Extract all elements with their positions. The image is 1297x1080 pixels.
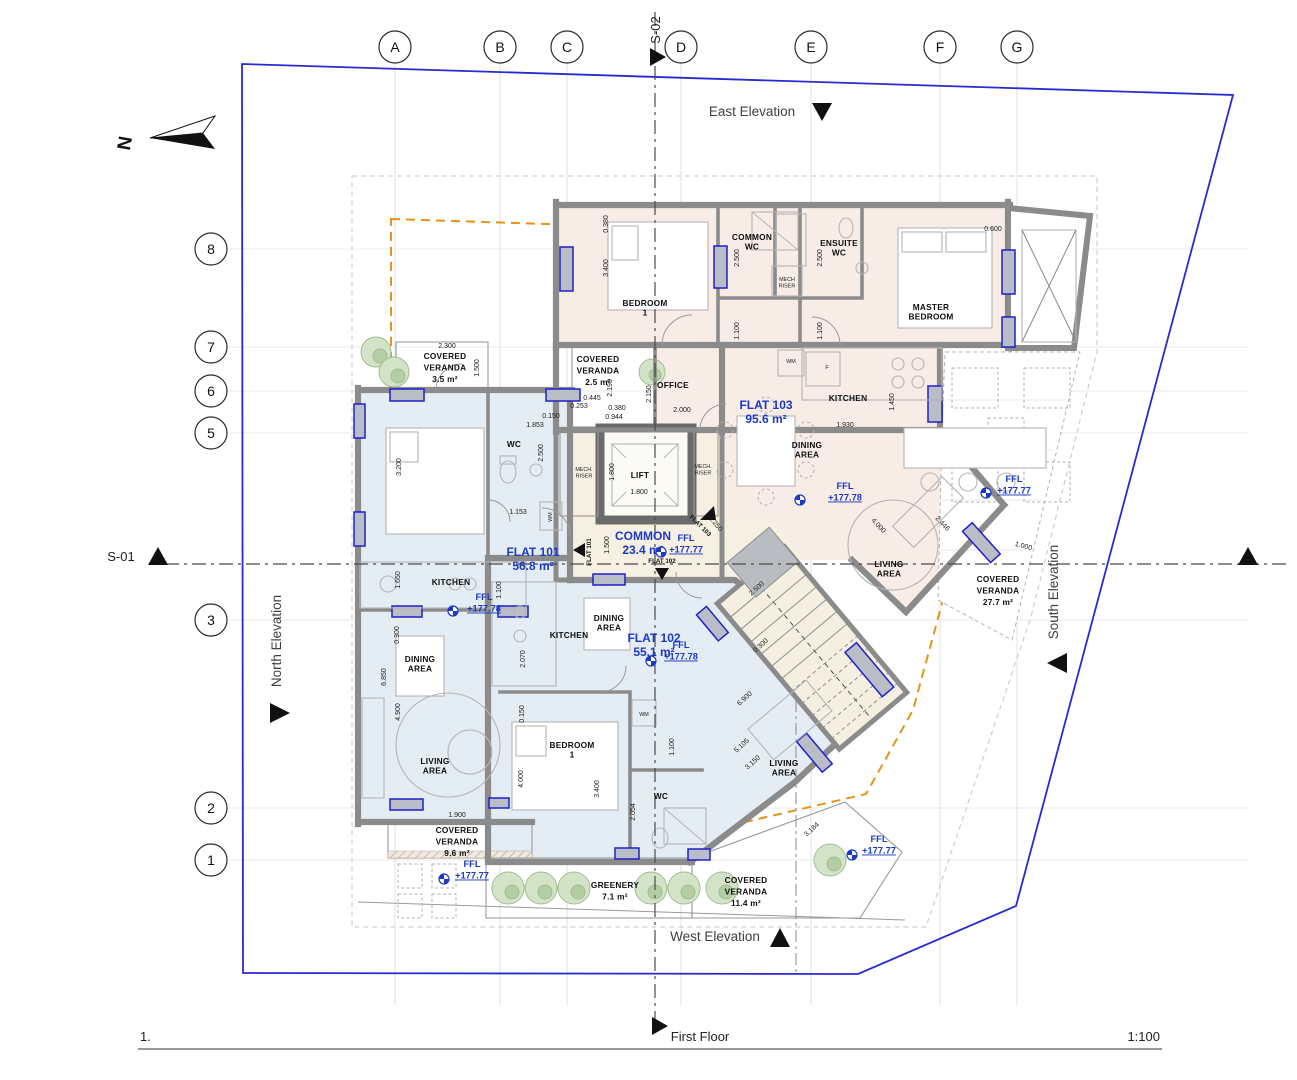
dimension-label: 1.930	[836, 422, 854, 429]
room-label: MASTERBEDROOM	[908, 302, 953, 322]
dimension-label: 1.900	[448, 812, 466, 819]
dimension-label: 2.190	[607, 379, 614, 397]
veranda-label: COVEREDVERANDA11.4 m²	[725, 875, 768, 908]
dimension-label: 2.500	[734, 249, 741, 267]
svg-text:7: 7	[207, 339, 215, 355]
title-block: 1. First Floor 1:100	[138, 1029, 1162, 1049]
dimension-label: 0.445	[583, 395, 601, 402]
dimension-label: 1.153	[509, 509, 527, 516]
svg-text:FFL: FFL	[836, 481, 853, 491]
veranda-label: COVEREDVERANDA3.5 m²	[424, 351, 467, 384]
flat-label: FLAT 10156.8 m²	[506, 545, 559, 573]
room-label: LIFT	[631, 470, 650, 480]
north-letter: N	[114, 135, 137, 152]
grid-bubble-2: 2	[195, 792, 227, 824]
north-arrow-icon: N	[114, 116, 215, 152]
flat-tag: FLAT 102	[648, 558, 676, 565]
dimension-label: 1.800	[630, 489, 648, 496]
dimension-label: 0.380	[603, 215, 610, 233]
section-label-s02: S-02	[648, 16, 663, 43]
room-label: KITCHEN	[432, 577, 471, 587]
svg-text:8: 8	[207, 241, 215, 257]
room-label: LIVINGAREA	[874, 559, 903, 579]
veranda-label: GREENERY7.1 m²	[591, 880, 639, 902]
dimension-label: 3.200	[396, 458, 403, 476]
ffl-marker: FFL+177.77	[439, 859, 489, 884]
svg-text:B: B	[495, 39, 504, 55]
dimension-label: 0.600	[984, 226, 1002, 233]
grid-bubble-E: E	[795, 31, 827, 63]
ffl-marker: FFL+177.77	[847, 834, 896, 860]
east-elevation-label: East Elevation	[709, 104, 795, 119]
svg-text:G: G	[1012, 39, 1023, 55]
grid-bubble-3: 3	[195, 604, 227, 636]
dimension-label: 0.380	[608, 405, 626, 412]
dimension-label: 1.853	[526, 422, 544, 429]
svg-text:+177.77: +177.77	[862, 846, 896, 856]
dimension-label: 1.100	[817, 322, 824, 340]
west-elevation-label: West Elevation	[670, 929, 760, 944]
dimension-label: 4.900	[395, 703, 402, 721]
dimension-label: 2.054	[630, 803, 637, 821]
grid-bubble-B: B	[484, 31, 516, 63]
dimension-label: 1.100	[734, 322, 741, 340]
dimension-label: 1.650	[395, 571, 402, 589]
room-label: DININGAREA	[405, 654, 436, 674]
svg-text:+177.78: +177.78	[467, 604, 501, 614]
dimension-label: 4.000	[518, 770, 525, 788]
grid-bubble-C: C	[551, 31, 583, 63]
dimension-label: 6.850	[381, 668, 388, 686]
svg-text:3: 3	[207, 612, 215, 628]
dimension-label: 1.100	[669, 738, 676, 756]
section-arrow-s01-left	[148, 547, 168, 565]
dimension-label: 0.300	[394, 626, 401, 644]
dimension-label: 1.500	[604, 536, 611, 554]
west-elevation-arrow-icon	[770, 928, 790, 947]
svg-text:F: F	[936, 39, 945, 55]
dimension-label: 0.150	[542, 413, 560, 420]
svg-text:+177.77: +177.77	[455, 871, 489, 881]
section-arrow-s02-bottom	[652, 1017, 668, 1035]
room-label: KITCHEN	[829, 393, 868, 403]
dimension-label: 0.253	[570, 403, 588, 410]
flat-label: FLAT 10395.6 m²	[739, 398, 792, 426]
tiny-label: MECHRISER	[779, 277, 796, 290]
dimension-label: 1.500	[474, 359, 481, 377]
north-elevation-arrow-icon	[270, 703, 290, 723]
svg-text:FFL: FFL	[463, 859, 480, 869]
section-arrow-s02-top	[650, 48, 666, 66]
svg-text:FFL: FFL	[677, 533, 694, 543]
svg-text:2: 2	[207, 800, 215, 816]
dimension-label: 2.000	[673, 407, 691, 414]
room-label: DININGAREA	[594, 613, 625, 633]
south-elevation-label: South Elevation	[1046, 545, 1061, 640]
room-label: LIVINGAREA	[420, 756, 449, 776]
svg-text:E: E	[806, 39, 815, 55]
room-label: WC	[507, 439, 521, 449]
grid-bubble-A: A	[379, 31, 411, 63]
dimension-label: 1.100	[496, 581, 503, 599]
dimension-label: 2.070	[520, 650, 527, 668]
floor-plan-canvas: ABCDEFG8765321FLAT 10156.8 m²FLAT 10255.…	[0, 0, 1297, 1080]
dimension-label: 1.800	[609, 463, 616, 481]
room-label: DININGAREA	[792, 440, 823, 460]
tiny-label: MECH.RISER	[575, 467, 592, 480]
svg-text:FFL: FFL	[672, 640, 689, 650]
dimension-label: 3.400	[594, 780, 601, 798]
grid-bubble-G: G	[1001, 31, 1033, 63]
dimension-label: 2.300	[438, 343, 456, 350]
drawing-title: First Floor	[671, 1029, 730, 1044]
grid-bubble-D: D	[665, 31, 697, 63]
svg-text:5: 5	[207, 425, 215, 441]
drawing-scale: 1:100	[1127, 1029, 1160, 1044]
room-label: OFFICE	[657, 380, 689, 390]
veranda-label: COVEREDVERANDA27.7 m²	[977, 574, 1020, 607]
tiny-label: MECH.RISER	[694, 464, 711, 477]
svg-text:FFL: FFL	[475, 592, 492, 602]
section-arrow-s01-right	[1238, 547, 1258, 565]
tiny-label: WM	[548, 512, 554, 522]
svg-text:FFL: FFL	[1005, 474, 1022, 484]
dimension-label: 3.400	[603, 259, 610, 277]
dimension-label: 2.500	[817, 249, 824, 267]
grid-bubble-6: 6	[195, 375, 227, 407]
svg-text:6: 6	[207, 383, 215, 399]
svg-text:+177.77: +177.77	[997, 486, 1031, 496]
dimension-label: 0.944	[605, 414, 623, 421]
dimension-label: 3.184	[803, 821, 821, 838]
flat-tag: FLAT 101	[586, 538, 593, 566]
room-label: KITCHEN	[550, 630, 589, 640]
room-label: LIVINGAREA	[769, 758, 798, 778]
svg-text:+177.78: +177.78	[828, 493, 862, 503]
dimension-label: 2.500	[538, 444, 545, 462]
drawing-number: 1.	[140, 1029, 151, 1044]
grid-bubble-8: 8	[195, 233, 227, 265]
room-label: WC	[654, 791, 668, 801]
grid-bubble-F: F	[924, 31, 956, 63]
svg-text:C: C	[562, 39, 572, 55]
svg-text:D: D	[676, 39, 686, 55]
svg-text:+177.77: +177.77	[669, 545, 703, 555]
tiny-label: WM	[786, 359, 796, 365]
south-elevation-arrow-icon	[1047, 653, 1067, 673]
dimension-label: 1.450	[889, 393, 896, 411]
dimension-label: 0.150	[519, 705, 526, 723]
north-elevation-label: North Elevation	[269, 595, 284, 687]
svg-text:1: 1	[207, 852, 215, 868]
grid-bubble-5: 5	[195, 417, 227, 449]
svg-text:+177.78: +177.78	[664, 652, 698, 662]
section-label-s01: S-01	[107, 549, 134, 564]
grid-bubble-7: 7	[195, 331, 227, 363]
svg-text:FFL: FFL	[870, 834, 887, 844]
tiny-label: WM	[639, 712, 649, 718]
grid-bubble-1: 1	[195, 844, 227, 876]
east-elevation-arrow-icon	[812, 103, 832, 121]
svg-text:A: A	[390, 39, 400, 55]
dimension-label: 2.150	[646, 385, 653, 403]
